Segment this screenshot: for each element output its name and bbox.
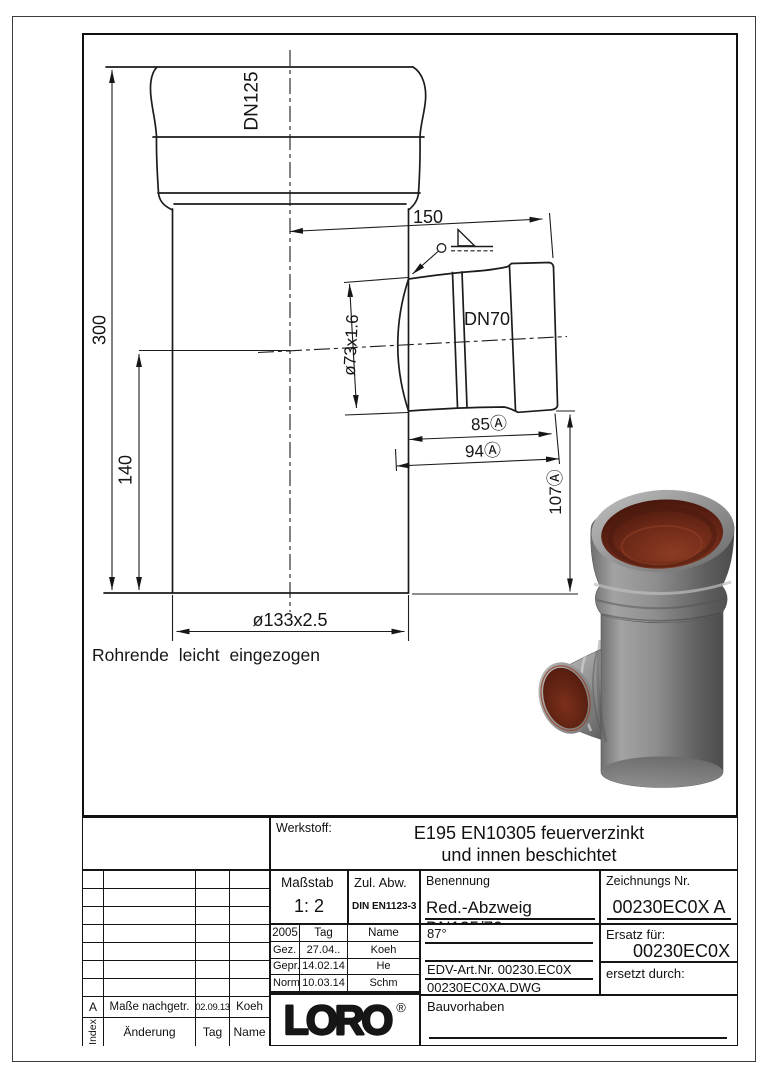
dim-107: 107Ⓐ [546, 469, 565, 514]
approval-row-date: 10.03.14 [300, 975, 347, 991]
approval-row-label: Norm. [271, 975, 299, 991]
benennung-label: Benennung [426, 874, 490, 888]
revision-name: Koeh [230, 997, 269, 1017]
zul-abw-value: DIN EN1123-3 [352, 901, 416, 912]
label-dn-main: DN125 [242, 71, 263, 130]
approval-row-date: 14.02.14 [300, 959, 347, 975]
approval-name-header: Name [348, 925, 419, 941]
dwg-file-name: 00230EC0XA.DWG [427, 980, 541, 995]
approval-row-name: Schm [348, 975, 419, 991]
approval-tag-header: Tag [300, 925, 347, 941]
bauvorhaben-cell: Bauvorhaben [420, 995, 738, 1046]
label-dn-branch: DN70 [464, 309, 510, 329]
zul-abw-label: Zul. Abw. [354, 875, 407, 890]
revision-index: A [83, 997, 103, 1017]
registered-trademark-icon: ® [396, 1000, 406, 1015]
massstab-label: Maßstab [281, 875, 334, 890]
pipe-end-note: Rohrende leicht eingezogen [92, 645, 320, 665]
dim-85: 85Ⓐ [471, 414, 508, 435]
revision-table: A Maße nachgetr. 02.09.13 Koeh Index Änd… [82, 870, 270, 1046]
ersatz-cell: Ersatz für: 00230EC0X [600, 924, 738, 962]
edv-art-nr: EDV-Art.Nr. 00230.EC0X [427, 962, 572, 977]
werkstoff-value-line2: und innen beschichtet [331, 844, 727, 866]
massstab-value: 1: 2 [271, 896, 347, 917]
zul-abw-cell: Zul. Abw. DIN EN1123-3 [348, 870, 420, 924]
loro-logo: LORO ® [271, 995, 419, 1045]
zeichnung-cell: Zeichnungs Nr. 00230EC0X A [600, 870, 738, 924]
approval-year: 2005 [271, 925, 299, 941]
revision-header-change: Änderung [104, 1018, 195, 1046]
branch-angle-value: 87° [427, 926, 447, 941]
revision-header-empty-cell [82, 817, 270, 870]
dim-branch-length: 150 [413, 207, 443, 227]
approval-row-name: He [348, 959, 419, 975]
werkstoff-value-line1: E195 EN10305 feuerverzinkt [331, 822, 727, 844]
dim-total-height: 300 [90, 315, 110, 345]
ersatz-label: Ersatz für: [606, 927, 665, 942]
svg-text:LORO: LORO [284, 997, 393, 1043]
drawing-sheet: DN125 DN70 150 300 140 ø73x1.6 85Ⓐ 94Ⓐ 1… [0, 0, 768, 1080]
benennung-cell: Benennung Red.-Abzweig DN125/70 [420, 870, 600, 924]
centerlines [258, 50, 567, 612]
revision-date: 02.09.13 [196, 997, 229, 1017]
revision-header-name: Name [230, 1018, 269, 1046]
bauvorhaben-label: Bauvorhaben [427, 999, 504, 1014]
massstab-cell: Maßstab 1: 2 [270, 870, 348, 924]
revision-header-index: Index [87, 1019, 99, 1045]
order-info-cell: 87° EDV-Art.Nr. 00230.EC0X 00230EC0XA.DW… [420, 924, 600, 995]
ersetzt-label: ersetzt durch: [606, 966, 685, 981]
extension-lines [139, 213, 578, 641]
approval-row-name: Koeh [348, 942, 419, 958]
zeichnung-label: Zeichnungs Nr. [606, 874, 690, 888]
main-pipe-outline [104, 67, 426, 593]
dim-branch-center-height: 140 [116, 455, 136, 485]
fillet-weld-symbol [413, 230, 494, 275]
werkstoff-cell: Werkstoff: E195 EN10305 feuerverzinkt un… [270, 817, 738, 870]
dim-main-diameter: ø133x2.5 [252, 610, 327, 630]
ersatz-value: 00230EC0X [633, 941, 730, 962]
title-block: A Maße nachgetr. 02.09.13 Koeh Index Änd… [82, 815, 738, 1044]
approval-row-label: Gepr. [271, 959, 299, 975]
approval-table: 2005 Tag Name Gez. 27.04.. Koeh Gepr. 14… [270, 924, 420, 994]
zeichnung-value: 00230EC0X A [601, 897, 737, 918]
revision-header-date: Tag [196, 1018, 229, 1046]
approval-row-label: Gez. [271, 942, 299, 958]
branch-pipe-outline [398, 263, 558, 413]
dim-branch-diameter: ø73x1.6 [340, 314, 362, 376]
revision-change: Maße nachgetr. [104, 997, 195, 1017]
logo-cell: LORO ® [270, 994, 420, 1046]
approval-row-date: 27.04.. [300, 942, 347, 958]
dim-94: 94Ⓐ [465, 441, 502, 462]
werkstoff-label: Werkstoff: [276, 821, 332, 835]
fitting-3d-render [530, 486, 737, 787]
ersetzt-cell: ersetzt durch: [600, 962, 738, 995]
